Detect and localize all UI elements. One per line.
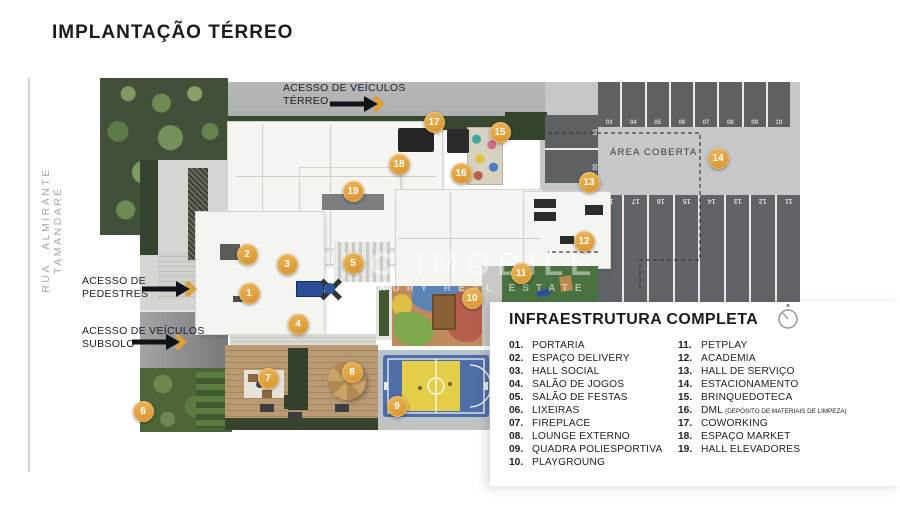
play-structure	[432, 294, 456, 330]
right-arrow-icon	[142, 281, 200, 297]
legend-item-number: 16.	[678, 405, 701, 416]
legend-item-label: ESPAÇO DELIVERY	[532, 353, 630, 364]
bottom-hedge	[225, 418, 380, 430]
legend-item-label: PETPLAY	[701, 340, 748, 351]
legend-item-label: LIXEIRAS	[532, 405, 579, 416]
legend-item: 08.LOUNGE EXTERNO	[509, 431, 678, 444]
legend-item: 13.HALL DE SERVIÇO	[678, 366, 888, 379]
coworking-tables	[447, 129, 469, 153]
legend-item-label: FIREPLACE	[532, 418, 590, 429]
interior-wall	[262, 124, 263, 210]
legend-item: 10.PLAYGROUNG	[509, 457, 678, 470]
legend-item-label: HALL SOCIAL	[532, 366, 600, 377]
playground-planter-green	[379, 290, 389, 336]
legend-item: 15.BRINQUEDOTECA	[678, 392, 888, 405]
legend-item-label: PLAYGROUNG	[532, 457, 605, 468]
legend-item: 04.SALÃO DE JOGOS	[509, 379, 678, 392]
legend-item-label: QUADRA POLIESPORTIVA	[532, 444, 662, 455]
legend-item-label: BRINQUEDOTECA	[701, 392, 792, 403]
legend-item: 03.HALL SOCIAL	[509, 366, 678, 379]
legend-columns: 01.PORTARIA02.ESPAÇO DELIVERY03.HALL SOC…	[509, 340, 888, 470]
elevator-core	[322, 194, 384, 210]
legend-item-label: ESTACIONAMENTO	[701, 379, 799, 390]
legend-item: 17.COWORKING	[678, 418, 888, 431]
coworking-tables	[398, 128, 434, 152]
legend-panel: INFRAESTRUTURA COMPLETA 01.PORTARIA02.ES…	[490, 302, 900, 486]
label-line: ACESSO DE	[82, 275, 148, 288]
legend-column: 01.PORTARIA02.ESPAÇO DELIVERY03.HALL SOC…	[509, 340, 678, 470]
legend-item-number: 09.	[509, 444, 532, 455]
legend-item: 07.FIREPLACE	[509, 418, 678, 431]
legend-item-number: 06.	[509, 405, 532, 416]
legend-item-number: 05.	[509, 392, 532, 403]
playground-area	[392, 286, 482, 346]
legend-column: 11.PETPLAY12.ACADEMIA13.HALL DE SERVIÇO1…	[678, 340, 888, 470]
legend-item-number: 03.	[509, 366, 532, 377]
legend-item: 02.ESPAÇO DELIVERY	[509, 353, 678, 366]
legend-title: INFRAESTRUTURA COMPLETA	[509, 311, 758, 329]
legend-item-label: COWORKING	[701, 418, 768, 429]
legend-item-label: PORTARIA	[532, 340, 585, 351]
legend-item: 11.PETPLAY	[678, 340, 888, 353]
deck-table	[260, 404, 274, 412]
legend-item-label: HALL ELEVADORES	[701, 444, 800, 455]
legend-item: 01.PORTARIA	[509, 340, 678, 353]
legend-item-number: 08.	[509, 431, 532, 442]
legend-item-number: 01.	[509, 340, 532, 351]
playground-patch	[394, 312, 434, 346]
right-arrow-icon	[330, 96, 388, 112]
legend-item-number: 17.	[678, 418, 701, 429]
legend-item: 18.ESPAÇO MARKET	[678, 431, 888, 444]
north-compass-icon	[775, 302, 801, 332]
street-name: RUA ALMIRANTE TAMANDARÉ	[40, 135, 54, 325]
legend-item-number: 19.	[678, 444, 701, 455]
legend-item-number: 10.	[509, 457, 532, 468]
firepit	[256, 381, 263, 388]
legend-item-label: DML	[701, 405, 723, 416]
legend-item-number: 18.	[678, 431, 701, 442]
legend-item-number: 11.	[678, 340, 701, 351]
covered-area-label: ÁREA COBERTA	[610, 146, 697, 159]
legend-item-number: 04.	[509, 379, 532, 390]
legend-item-label: ESPAÇO MARKET	[701, 431, 791, 442]
legend-item-number: 13.	[678, 366, 701, 377]
right-arrow-icon	[132, 334, 190, 350]
legend-item: 05.SALÃO DE FESTAS	[509, 392, 678, 405]
watermark-tagline: LUXURY REAL ESTATE	[290, 283, 650, 294]
left-hedge	[140, 160, 158, 255]
lounge-chair	[262, 390, 272, 398]
legend-item-note: (DEPÓSITO DE MATERIAIS DE LIMPEZA)	[725, 408, 847, 415]
legend-item: 19.HALL ELEVADORES	[678, 444, 888, 457]
watermark-brand: EC IMOBILE	[290, 246, 650, 283]
legend-item: 16.DML(DEPÓSITO DE MATERIAIS DE LIMPEZA)	[678, 405, 888, 418]
legend-item-number: 14.	[678, 379, 701, 390]
pedestrian-access-label: ACESSO DE PEDESTRES	[82, 275, 148, 301]
site-plan-page: IMPLANTAÇÃO TÉRREO RUA ALMIRANTE TAMANDA…	[0, 0, 900, 506]
legend-item: 12.ACADEMIA	[678, 353, 888, 366]
legend-item-label: SALÃO DE JOGOS	[532, 379, 624, 390]
legend-item-label: ACADEMIA	[701, 353, 756, 364]
legend-item-number: 12.	[678, 353, 701, 364]
legend-item-label: LOUNGE EXTERNO	[532, 431, 630, 442]
interior-wall	[398, 238, 540, 239]
deck-table	[335, 404, 349, 412]
street-divider-line	[28, 78, 30, 472]
page-title: IMPLANTAÇÃO TÉRREO	[52, 22, 293, 44]
legend-item: 09.QUADRA POLIESPORTIVA	[509, 444, 678, 457]
deck-hedge	[284, 395, 306, 409]
interior-wall	[236, 176, 436, 177]
legend-item: 06.LIXEIRAS	[509, 405, 678, 418]
label-line: ACESSO DE VEÍCULOS	[283, 82, 406, 95]
legend-item-number: 07.	[509, 418, 532, 429]
reception-desk	[233, 296, 249, 302]
patio-umbrella	[328, 362, 366, 400]
label-line: PEDESTRES	[82, 288, 148, 301]
hedge-rows	[196, 372, 228, 428]
legend-item-number: 15.	[678, 392, 701, 403]
delivery-lockers	[220, 244, 240, 260]
sports-court	[378, 350, 494, 422]
legend-item: 14.ESTACIONAMENTO	[678, 379, 888, 392]
legend-item-label: SALÃO DE FESTAS	[532, 392, 628, 403]
legend-item-number: 02.	[509, 353, 532, 364]
legend-item-label: HALL DE SERVIÇO	[701, 366, 795, 377]
kids-room	[468, 128, 502, 184]
